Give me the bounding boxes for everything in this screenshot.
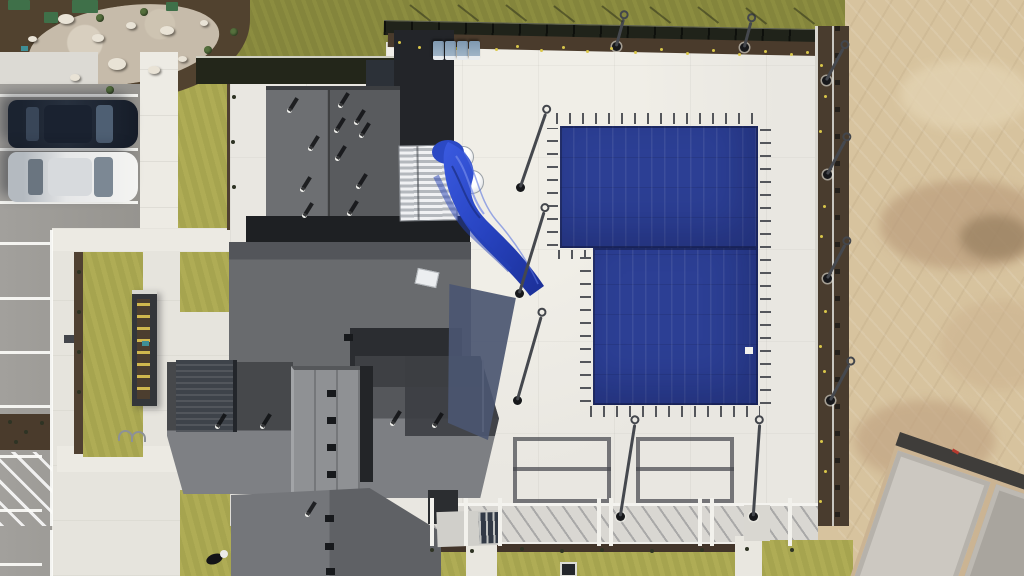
cover-anchors-right	[760, 128, 771, 404]
monument-planter	[132, 290, 157, 406]
pergola-shadow	[513, 437, 611, 503]
patio-pad	[436, 510, 501, 547]
pool-cover-upper	[560, 126, 758, 248]
mulch-strip	[74, 252, 83, 454]
parking-planting-bed	[0, 414, 50, 450]
pergola-shadow	[636, 437, 734, 503]
planter-plants	[137, 299, 150, 399]
entry-canopy	[176, 360, 237, 432]
bench	[478, 512, 499, 544]
sand-dark-patch	[960, 215, 1024, 260]
roof-north-wing	[266, 86, 400, 232]
perimeter-fence-right	[815, 26, 849, 526]
parked-car-white	[8, 152, 138, 202]
concrete-apron	[0, 52, 98, 86]
cover-anchors-notch	[558, 250, 592, 259]
cover-anchors-top	[556, 113, 760, 124]
storm-drain	[64, 335, 74, 343]
walk-path	[735, 536, 762, 576]
cover-anchors-left	[580, 252, 591, 402]
gate-pad	[744, 505, 770, 541]
utility-box	[560, 562, 577, 576]
cover-anchors-bottom	[590, 406, 760, 417]
car-roof	[44, 105, 92, 143]
dog-head	[220, 550, 228, 558]
skimmer-lid	[745, 347, 753, 354]
lawn-patch	[180, 252, 233, 312]
rear-window	[28, 159, 43, 195]
windshield	[94, 157, 113, 197]
lawn-patch	[176, 80, 230, 230]
sand-light-patch	[900, 60, 1024, 130]
lawn-bottom-right	[755, 540, 853, 576]
windshield	[96, 105, 113, 143]
car-roof	[48, 158, 92, 196]
blue-tarp	[426, 136, 558, 308]
pool-cover-lower	[593, 248, 758, 405]
rear-window	[26, 107, 39, 141]
no-parking-hatch	[0, 452, 52, 526]
aerial-photo	[0, 0, 1024, 576]
parked-car-dark	[8, 100, 138, 148]
